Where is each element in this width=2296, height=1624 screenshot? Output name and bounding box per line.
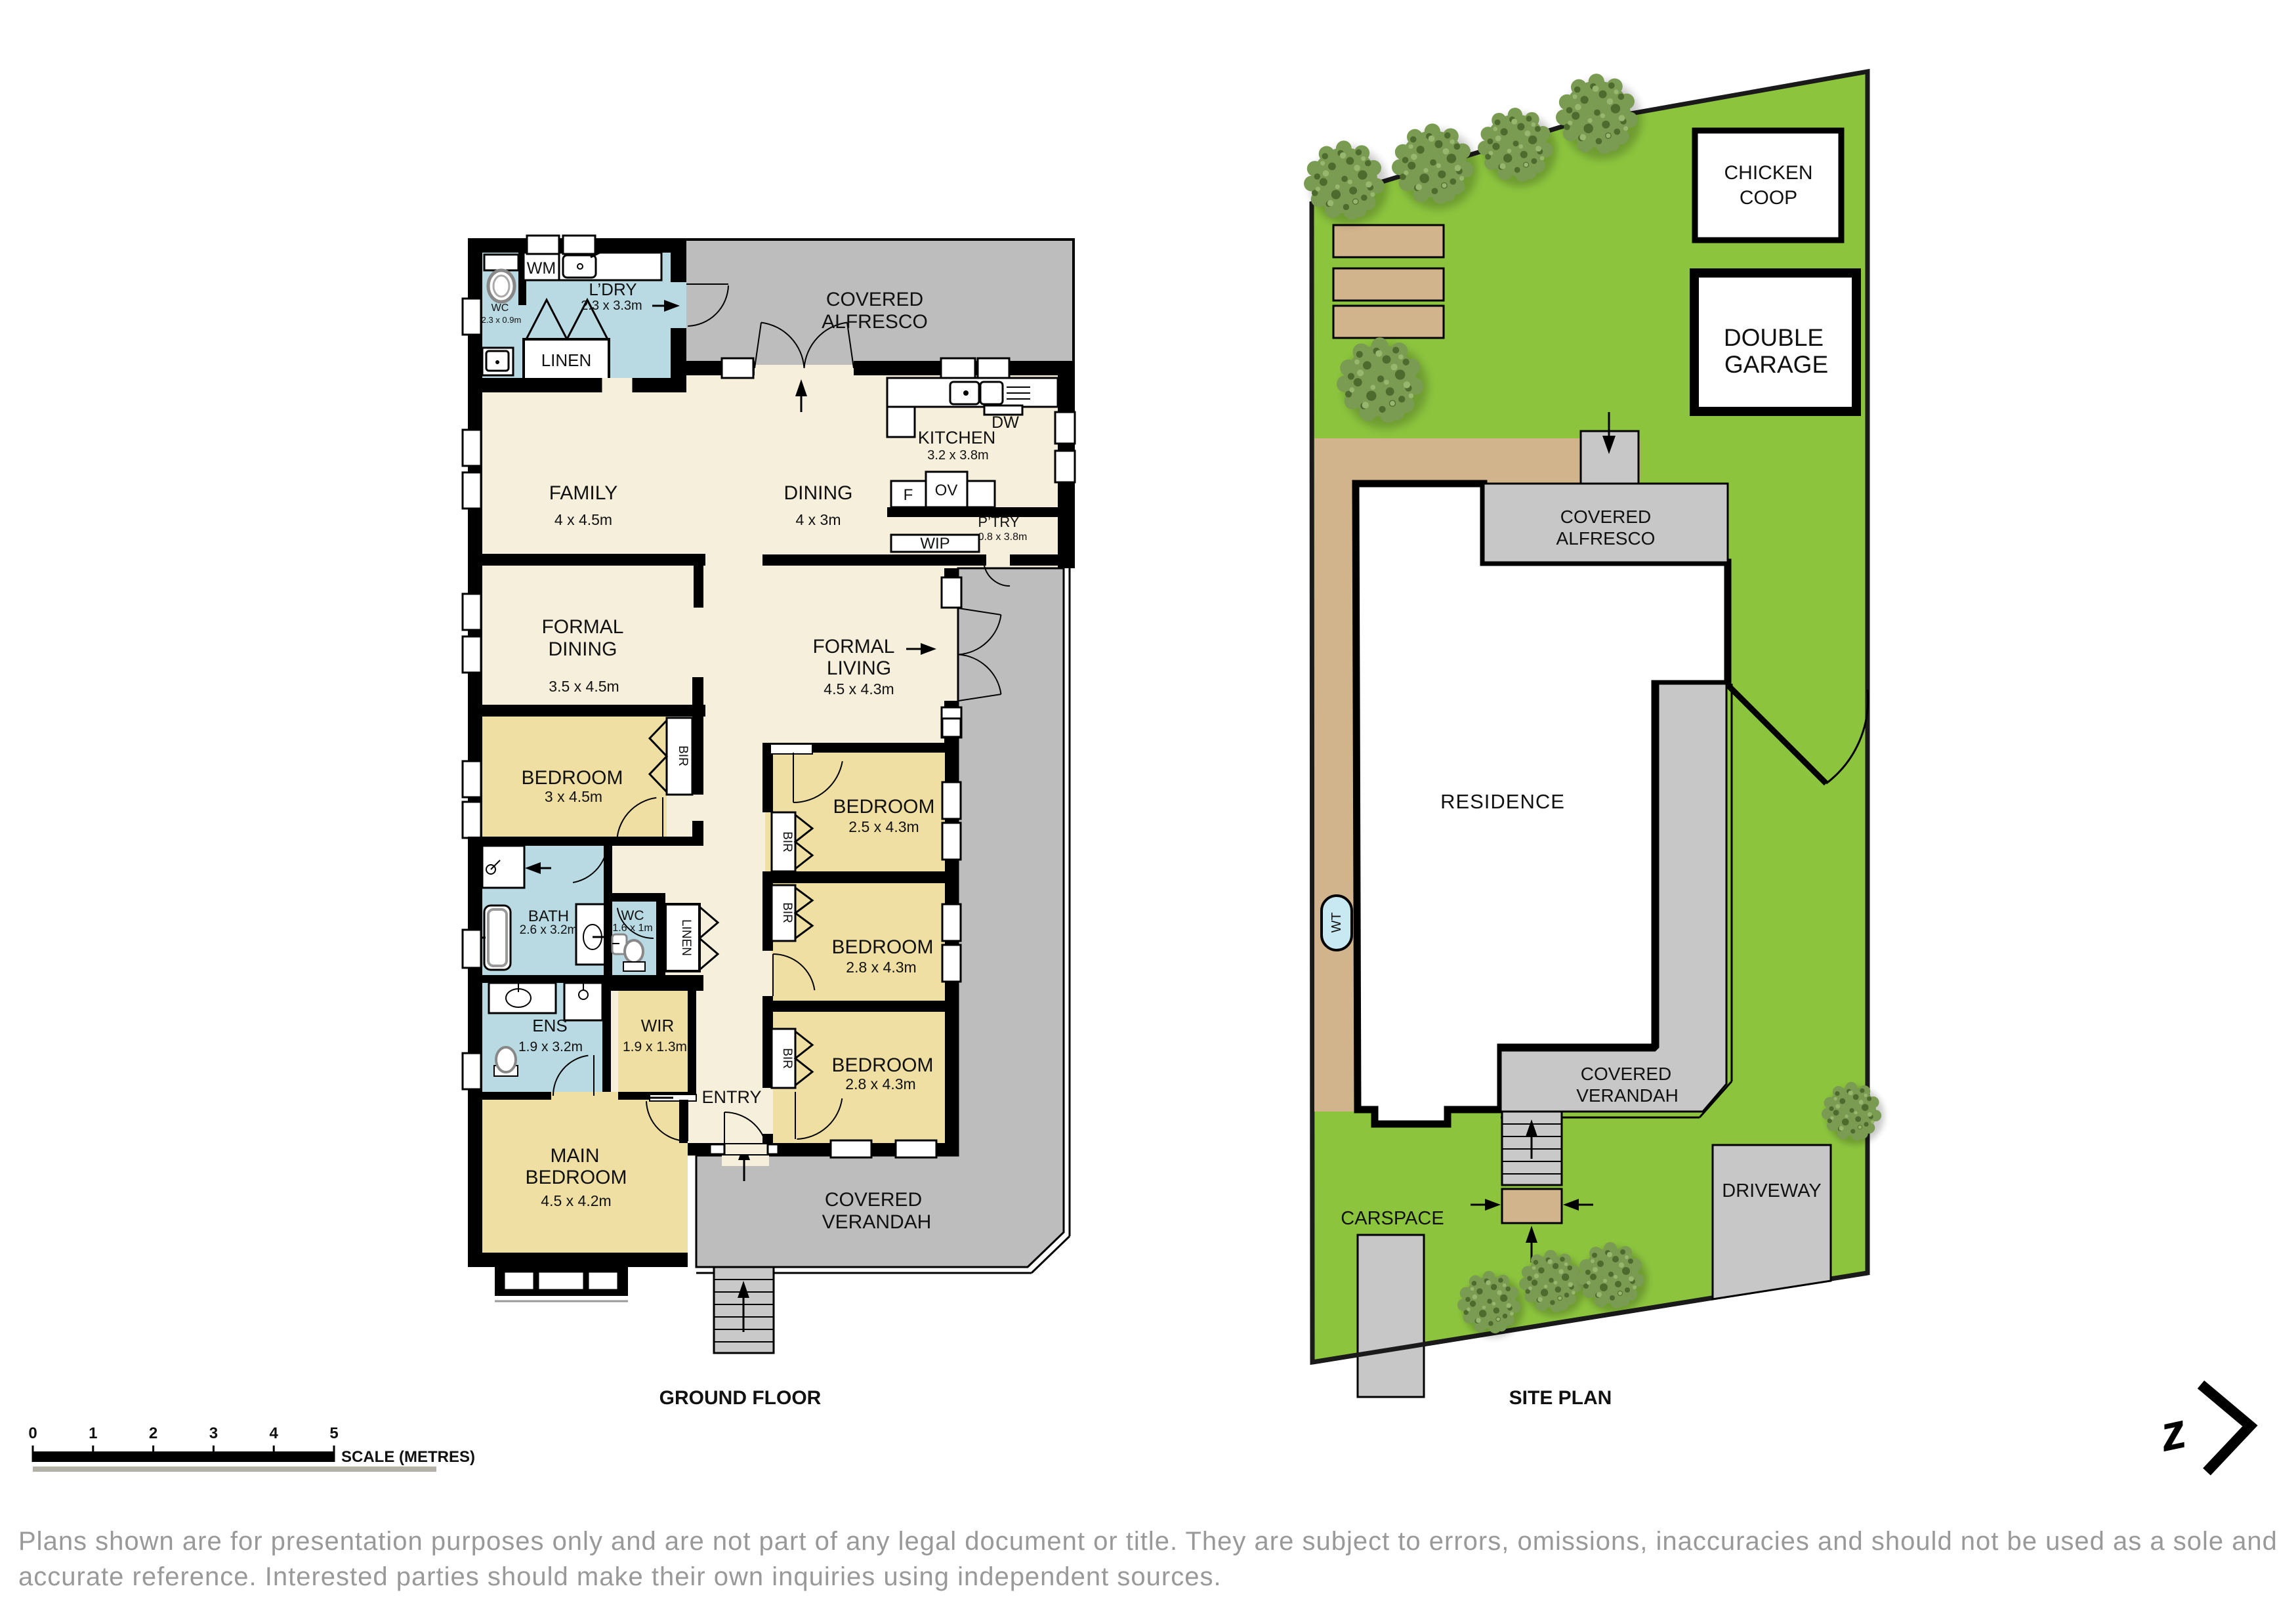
svg-text:5: 5 bbox=[329, 1425, 338, 1442]
svg-text:LINEN: LINEN bbox=[541, 350, 592, 370]
svg-text:BATH: BATH bbox=[528, 907, 569, 925]
svg-text:BEDROOM: BEDROOM bbox=[831, 1054, 933, 1076]
svg-text:CHICKEN: CHICKEN bbox=[1724, 162, 1812, 184]
svg-text:BEDROOM: BEDROOM bbox=[831, 936, 933, 958]
svg-text:ALFRESCO: ALFRESCO bbox=[1556, 528, 1656, 549]
svg-text:F: F bbox=[904, 486, 913, 504]
svg-text:BEDROOM: BEDROOM bbox=[525, 1167, 627, 1188]
svg-text:0.8 x 3.8m: 0.8 x 3.8m bbox=[978, 531, 1028, 543]
svg-text:SCALE (METRES): SCALE (METRES) bbox=[341, 1448, 475, 1466]
svg-text:FORMAL: FORMAL bbox=[541, 616, 623, 638]
svg-text:ENTRY: ENTRY bbox=[701, 1087, 761, 1107]
svg-text:3.2 x 3.8m: 3.2 x 3.8m bbox=[927, 448, 988, 463]
svg-text:VERANDAH: VERANDAH bbox=[1576, 1085, 1679, 1106]
svg-text:1: 1 bbox=[89, 1425, 97, 1442]
svg-text:WC: WC bbox=[491, 302, 509, 314]
svg-text:SITE PLAN: SITE PLAN bbox=[1509, 1387, 1612, 1409]
svg-text:WIP: WIP bbox=[920, 535, 950, 552]
svg-text:4.5 x 4.2m: 4.5 x 4.2m bbox=[541, 1192, 611, 1209]
svg-text:Plans shown are for presentati: Plans shown are for presentation purpose… bbox=[18, 1527, 2278, 1556]
svg-text:BIR: BIR bbox=[676, 745, 690, 766]
svg-text:1.9 x 3.2m: 1.9 x 3.2m bbox=[518, 1039, 583, 1054]
svg-text:DW: DW bbox=[991, 413, 1019, 432]
svg-text:CARSPACE: CARSPACE bbox=[1341, 1208, 1444, 1229]
svg-text:3: 3 bbox=[209, 1425, 218, 1442]
svg-text:3.5 x 4.5m: 3.5 x 4.5m bbox=[549, 678, 619, 695]
svg-text:BIR: BIR bbox=[780, 1048, 794, 1069]
svg-text:DRIVEWAY: DRIVEWAY bbox=[1722, 1180, 1821, 1201]
svg-text:COOP: COOP bbox=[1740, 187, 1797, 209]
svg-text:4: 4 bbox=[270, 1425, 279, 1442]
svg-text:ENS: ENS bbox=[532, 1016, 567, 1035]
svg-text:FAMILY: FAMILY bbox=[549, 482, 617, 504]
svg-text:DINING: DINING bbox=[549, 638, 617, 660]
svg-text:WIR: WIR bbox=[641, 1016, 675, 1035]
svg-text:BIR: BIR bbox=[780, 902, 794, 923]
svg-text:WM: WM bbox=[527, 259, 556, 278]
svg-text:DOUBLE: DOUBLE bbox=[1724, 324, 1824, 351]
svg-text:accurate reference. Interested: accurate reference. Interested parties s… bbox=[18, 1562, 1222, 1591]
svg-text:BIR: BIR bbox=[780, 831, 794, 852]
svg-text:COVERED: COVERED bbox=[825, 1189, 922, 1211]
svg-text:2.8 x 4.3m: 2.8 x 4.3m bbox=[846, 959, 916, 976]
svg-text:BEDROOM: BEDROOM bbox=[521, 767, 623, 789]
svg-text:2.3 x 3.3m: 2.3 x 3.3m bbox=[581, 299, 642, 313]
svg-text:KITCHEN: KITCHEN bbox=[918, 428, 996, 448]
svg-text:2.6 x 3.2m: 2.6 x 3.2m bbox=[520, 923, 578, 937]
svg-text:COVERED: COVERED bbox=[826, 289, 923, 310]
svg-text:1.6 x 1m: 1.6 x 1m bbox=[612, 923, 652, 934]
svg-text:P’TRY: P’TRY bbox=[978, 514, 1019, 530]
svg-text:DINING: DINING bbox=[784, 482, 853, 504]
svg-text:4.5 x 4.3m: 4.5 x 4.3m bbox=[824, 680, 894, 697]
svg-text:BEDROOM: BEDROOM bbox=[833, 796, 934, 818]
svg-text:LIVING: LIVING bbox=[827, 657, 891, 679]
svg-text:FORMAL: FORMAL bbox=[812, 636, 894, 657]
svg-text:LINEN: LINEN bbox=[679, 919, 693, 956]
svg-text:COVERED: COVERED bbox=[1560, 507, 1651, 527]
svg-text:0: 0 bbox=[28, 1425, 37, 1442]
svg-text:4 x 4.5m: 4 x 4.5m bbox=[554, 511, 612, 528]
svg-text:4 x 3m: 4 x 3m bbox=[795, 511, 841, 528]
svg-text:3 x 4.5m: 3 x 4.5m bbox=[545, 788, 602, 805]
svg-text:2: 2 bbox=[149, 1425, 157, 1442]
svg-text:COVERED: COVERED bbox=[1581, 1064, 1671, 1084]
svg-text:2.5 x 4.3m: 2.5 x 4.3m bbox=[848, 818, 919, 835]
svg-text:1.9 x 1.3m: 1.9 x 1.3m bbox=[623, 1039, 687, 1054]
svg-text:GARAGE: GARAGE bbox=[1724, 351, 1828, 378]
svg-text:GROUND FLOOR: GROUND FLOOR bbox=[659, 1387, 822, 1409]
svg-text:2.8 x 4.3m: 2.8 x 4.3m bbox=[845, 1075, 915, 1093]
svg-text:WT: WT bbox=[1329, 912, 1344, 932]
svg-text:RESIDENCE: RESIDENCE bbox=[1440, 790, 1565, 813]
svg-text:WC: WC bbox=[621, 908, 644, 923]
svg-text:2.3 x 0.9m: 2.3 x 0.9m bbox=[482, 315, 522, 325]
svg-text:L’DRY: L’DRY bbox=[589, 280, 637, 299]
svg-text:ALFRESCO: ALFRESCO bbox=[822, 311, 928, 333]
svg-text:OV: OV bbox=[935, 482, 958, 499]
svg-text:MAIN: MAIN bbox=[551, 1145, 600, 1167]
svg-text:VERANDAH: VERANDAH bbox=[822, 1211, 932, 1233]
